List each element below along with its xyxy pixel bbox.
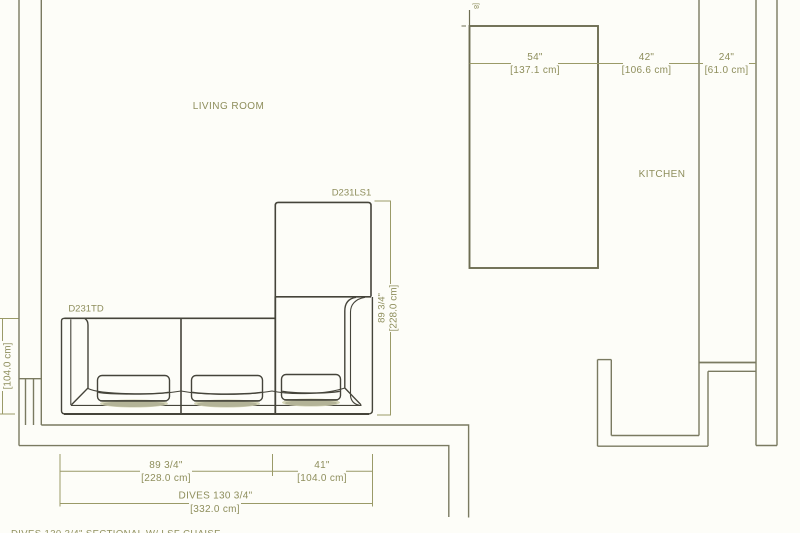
svg-text:89 3/4": 89 3/4": [377, 293, 388, 323]
svg-text:D231LS1: D231LS1: [332, 188, 372, 199]
svg-text:[228.0 cm]: [228.0 cm]: [389, 284, 400, 331]
svg-text:[332.0 cm]: [332.0 cm]: [190, 504, 240, 515]
svg-text:DIVES 130 3/4" SECTIONAL W/ LS: DIVES 130 3/4" SECTIONAL W/ LSF CHAISE: [11, 529, 221, 533]
svg-text:[104.0 cm]: [104.0 cm]: [3, 342, 14, 389]
svg-text:[8: [8: [472, 3, 479, 9]
svg-text:DIVES 130 3/4": DIVES 130 3/4": [179, 491, 253, 502]
svg-text:42": 42": [639, 52, 655, 63]
svg-text:89 3/4": 89 3/4": [149, 460, 183, 471]
svg-text:KITCHEN: KITCHEN: [639, 169, 686, 180]
svg-text:[104.0 cm]: [104.0 cm]: [297, 473, 347, 484]
svg-text:41": 41": [314, 460, 330, 471]
svg-text:[106.6 cm]: [106.6 cm]: [622, 65, 672, 76]
svg-text:[137.1 cm]: [137.1 cm]: [510, 65, 560, 76]
svg-text:54": 54": [527, 52, 543, 63]
svg-text:[228.0 cm]: [228.0 cm]: [141, 473, 191, 484]
svg-text:D231TD: D231TD: [68, 304, 104, 315]
svg-text:LIVING ROOM: LIVING ROOM: [193, 101, 265, 112]
svg-text:24": 24": [719, 52, 735, 63]
svg-text:[61.0 cm]: [61.0 cm]: [705, 65, 749, 76]
